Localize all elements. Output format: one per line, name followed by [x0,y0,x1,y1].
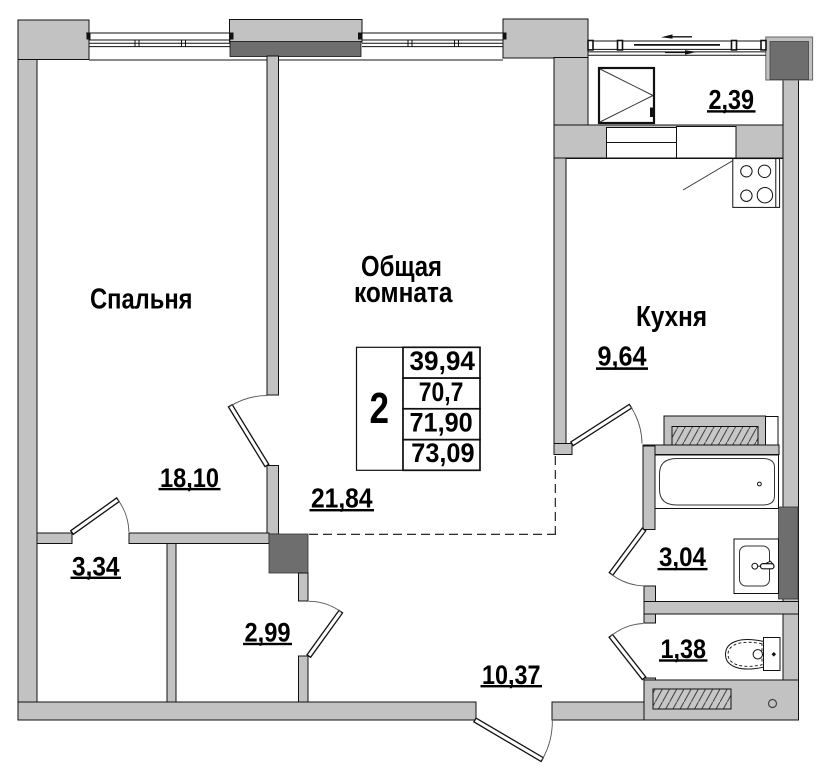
svg-text:Спальня: Спальня [90,284,193,316]
svg-text:2: 2 [370,384,390,433]
svg-text:70,7: 70,7 [419,377,464,407]
svg-text:73,09: 73,09 [411,438,474,468]
svg-text:3,04: 3,04 [659,542,706,572]
svg-text:9,64: 9,64 [598,341,647,372]
svg-text:39,94: 39,94 [410,346,476,376]
svg-text:Кухня: Кухня [636,301,707,333]
svg-text:21,84: 21,84 [311,482,373,513]
svg-text:комната: комната [354,277,453,309]
svg-text:2,39: 2,39 [709,84,755,115]
svg-text:71,90: 71,90 [410,408,473,438]
